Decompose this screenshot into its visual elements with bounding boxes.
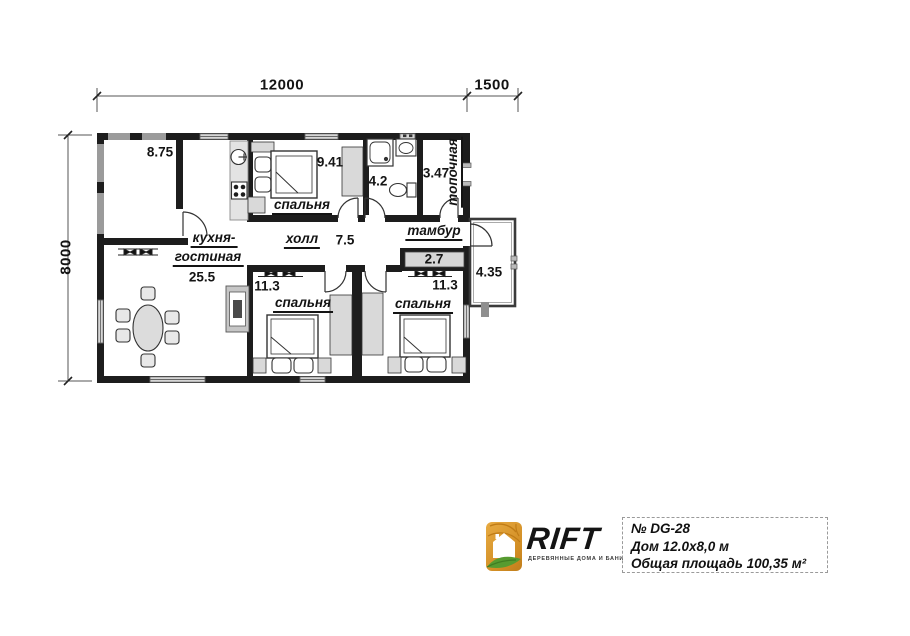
bedroom-top-area: 9.41 bbox=[317, 155, 343, 170]
kitchen-living-area: 25.5 bbox=[189, 270, 215, 285]
bedroom-left-label: спальня bbox=[273, 295, 333, 313]
fireplace-icon bbox=[226, 286, 249, 332]
floorplan-page: { "plan": { "dimensions": { "width_main"… bbox=[0, 0, 910, 636]
terrace-area: 8.75 bbox=[147, 145, 173, 160]
hall-label: холл bbox=[284, 231, 320, 249]
dimension-width-main: 12000 bbox=[260, 77, 304, 94]
total-area: Общая площадь 100,35 м² bbox=[631, 555, 819, 573]
bedroom-right-area: 11.3 bbox=[432, 278, 458, 293]
bed-icon bbox=[400, 315, 450, 357]
bedroom-right-label: спальня bbox=[393, 296, 453, 314]
kitchen-counter bbox=[230, 141, 248, 220]
title-block: № DG-28 Дом 12.0x8,0 м Общая площадь 100… bbox=[622, 517, 828, 573]
rift-logo-mark bbox=[486, 522, 522, 571]
wardrobe-icon bbox=[362, 293, 383, 355]
boiler-label: топочная bbox=[445, 136, 463, 207]
wardrobe-icon bbox=[342, 147, 363, 196]
dimension-width-porch: 1500 bbox=[474, 77, 509, 94]
rift-logo-icon bbox=[486, 522, 522, 571]
vestibule-label: тамбур bbox=[405, 223, 462, 241]
shower-icon bbox=[367, 139, 393, 166]
kitchen-living-label-2: гостиная bbox=[173, 249, 244, 267]
bedroom-top-label: спальня bbox=[272, 197, 332, 215]
stove-icon bbox=[232, 182, 248, 199]
porch-area: 4.35 bbox=[476, 265, 502, 280]
brand-tagline: ДЕРЕВЯННЫЕ ДОМА И БАНИ bbox=[528, 556, 624, 562]
boiler-exterior-door bbox=[462, 163, 471, 186]
toilet-icon bbox=[407, 183, 416, 197]
project-number: № DG-28 bbox=[631, 520, 819, 538]
vestibule-area: 2.7 bbox=[425, 252, 444, 267]
dimension-height: 8000 bbox=[58, 239, 75, 274]
hall-area: 7.5 bbox=[336, 233, 355, 248]
kitchen-living-label-1: кухня- bbox=[191, 230, 238, 248]
bedroom-left-area: 11.3 bbox=[254, 279, 280, 294]
wardrobe-icon bbox=[330, 295, 352, 355]
dining-table-icon bbox=[116, 287, 179, 367]
house-size: Дом 12.0x8,0 м bbox=[631, 538, 819, 556]
brand-name: RIFT bbox=[525, 524, 601, 554]
bathroom-area: 4.2 bbox=[369, 174, 388, 189]
leaf-icon bbox=[487, 557, 521, 568]
bed-icon bbox=[267, 315, 318, 358]
